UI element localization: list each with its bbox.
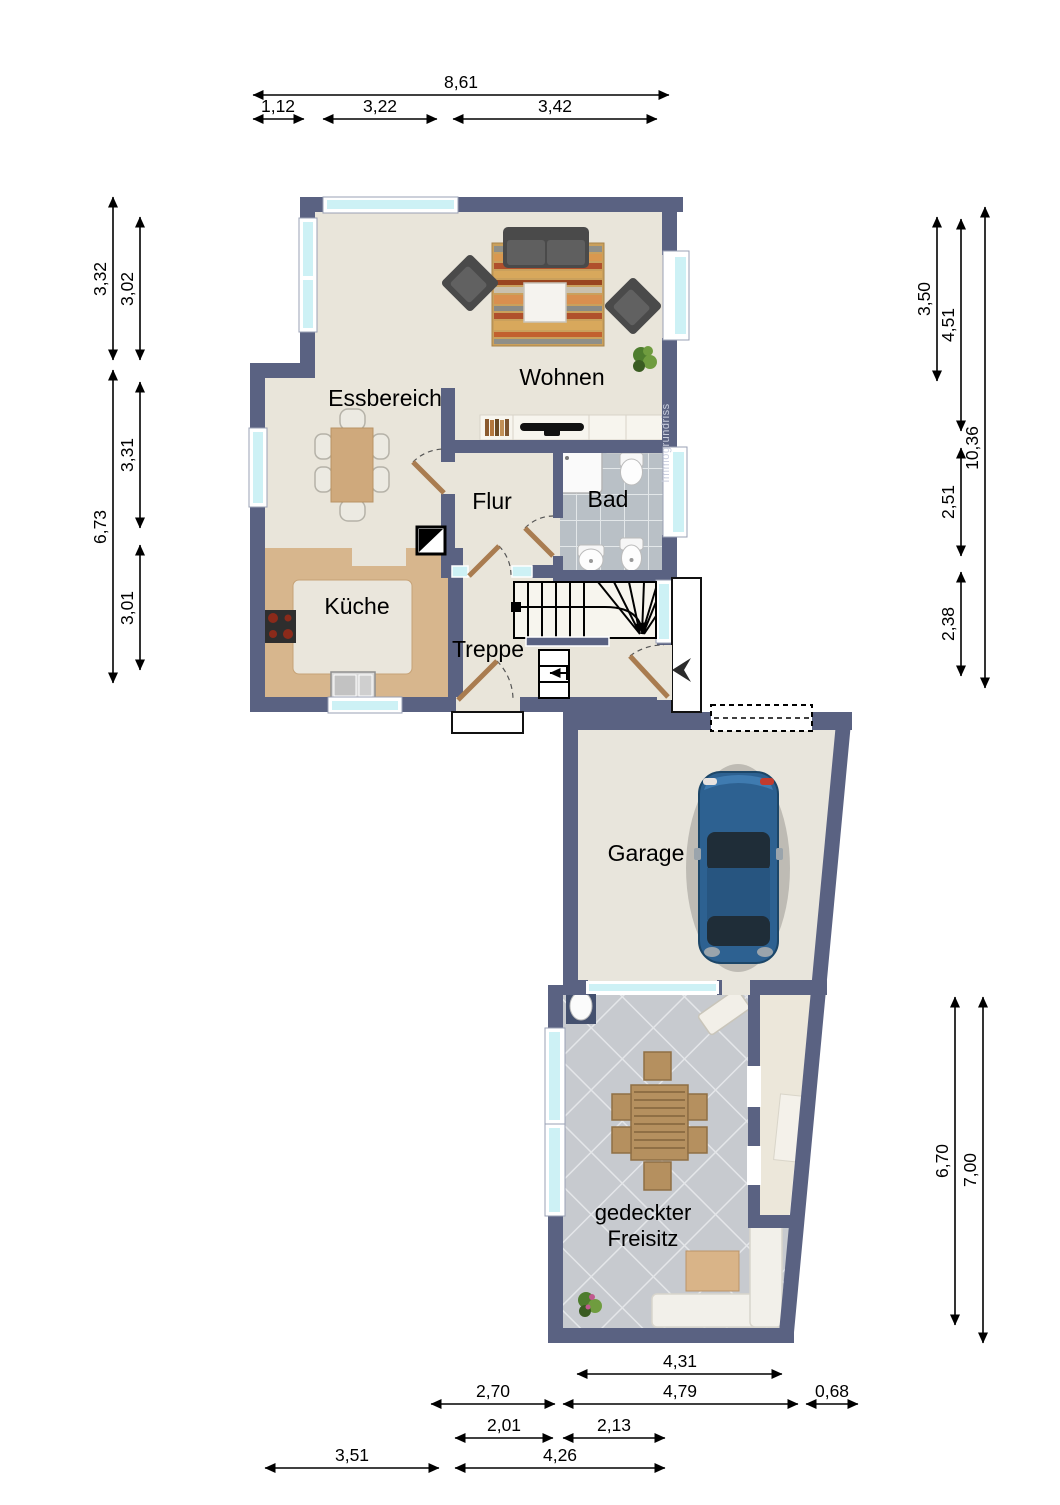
dim-left-5: 3,01 [117,591,137,625]
chimney-icon [417,527,445,554]
garden-step-opening [456,697,520,712]
room-label-freisitz-2: Freisitz [608,1226,679,1251]
dim-bottom-7: 3,51 [335,1445,369,1465]
room-label-essbereich: Essbereich [328,385,442,411]
dim-left-3: 6,73 [90,510,110,544]
garden-step [452,712,523,733]
dim-top-3: 3,42 [538,96,572,116]
dim-bottom-4: 0,68 [815,1381,849,1401]
dim-bottom-8: 4,26 [543,1445,577,1465]
dim-right-6: 6,70 [932,1144,952,1178]
dining-table [331,428,373,502]
garage-door-marker [711,705,812,731]
room-label-bad: Bad [588,486,629,512]
sofa [503,227,589,268]
books [485,419,509,436]
handrail [526,637,609,646]
dim-right-1: 3,50 [914,282,934,316]
dim-right-5: 2,38 [938,607,958,641]
toilet [620,453,643,485]
window-right-treppe [656,580,672,643]
dim-right-3: 10,36 [962,426,982,470]
dim-bottom-2: 2,70 [476,1381,510,1401]
bidet [578,545,604,571]
dim-left-4: 3,31 [117,438,137,472]
room-label-freisitz-1: gedeckter [595,1200,692,1225]
dim-bottom-5: 2,01 [487,1415,521,1435]
coffee-table [524,283,566,322]
dim-bottom-1: 4,31 [663,1351,697,1371]
room-label-treppe: Treppe [452,636,524,662]
dim-top-1: 1,12 [261,96,295,116]
dim-left-1: 3,32 [90,262,110,296]
garage-side-opening [722,980,750,995]
entry-porch [672,578,701,712]
dim-right-4: 2,51 [938,485,958,519]
window-right-wohnen [663,251,689,340]
window-left-lower [249,428,267,507]
dim-right-7: 7,00 [960,1153,980,1187]
window-garage-patio [586,981,719,994]
stove [265,610,296,643]
patio-coffee-table [686,1251,739,1291]
car [686,764,790,972]
window-patio-left [545,1028,565,1216]
kitchen-sink [331,672,375,699]
room-label-garage: Garage [608,840,685,866]
sideboard [480,415,663,440]
dim-top-total: 8,61 [444,72,478,92]
dim-left-2: 3,02 [117,272,137,306]
basement-stairs [539,650,569,698]
window-left-upper [299,218,317,332]
window-kitchen [328,697,402,713]
window-top [323,197,458,213]
floor-plan: Wohnen Essbereich Flur Bad Küche Treppe … [0,0,1060,1500]
room-label-wohnen: Wohnen [519,364,604,390]
watermark: Immogrundriss [660,403,672,482]
patio-table [631,1085,688,1160]
kitchen-counter [262,548,450,702]
toilet-2 [620,538,643,571]
room-label-kueche: Küche [324,593,389,619]
room-label-flur: Flur [472,488,512,514]
dim-right-2: 4,51 [938,308,958,342]
dim-bottom-3: 4,79 [663,1381,697,1401]
dim-bottom-6: 2,13 [597,1415,631,1435]
dim-top-2: 3,22 [363,96,397,116]
